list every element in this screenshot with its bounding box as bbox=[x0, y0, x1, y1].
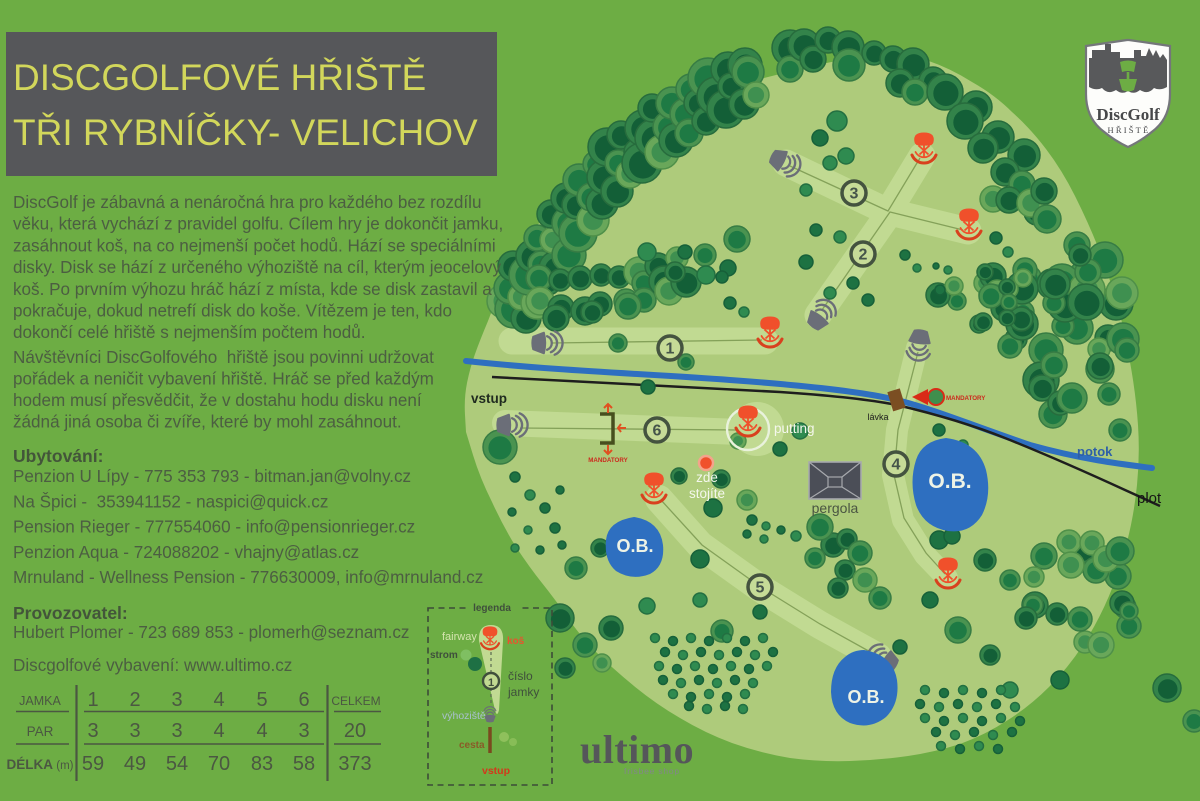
svg-text:3: 3 bbox=[850, 186, 859, 203]
svg-text:Penzion U Lípy - 775 353 793 -: Penzion U Lípy - 775 353 793 - bitman.ja… bbox=[13, 467, 411, 486]
svg-text:plot: plot bbox=[1137, 490, 1162, 507]
svg-text:Ubytování:: Ubytování: bbox=[13, 446, 103, 466]
svg-text:věku, která vychází z pravidel: věku, která vychází z pravidel golfu. Cí… bbox=[13, 215, 503, 234]
svg-text:O.B.: O.B. bbox=[847, 687, 884, 707]
svg-text:1: 1 bbox=[666, 341, 675, 358]
svg-text:disky. Disk se hází z určeného: disky. Disk se hází z určeného výhoziště… bbox=[13, 258, 501, 277]
svg-text:49: 49 bbox=[124, 753, 146, 775]
svg-text:vstup: vstup bbox=[471, 391, 507, 406]
svg-text:5: 5 bbox=[756, 580, 765, 597]
svg-text:3: 3 bbox=[87, 720, 98, 742]
svg-text:koš. Po prvním výhozu hráč ház: koš. Po prvním výhozu hráč hází z místa,… bbox=[13, 280, 492, 299]
svg-text:4: 4 bbox=[213, 689, 224, 711]
svg-text:5: 5 bbox=[256, 689, 267, 711]
svg-text:2: 2 bbox=[129, 689, 140, 711]
svg-text:Penzion Aqua - 724088202 - vha: Penzion Aqua - 724088202 - vhajny@atlas.… bbox=[13, 543, 359, 562]
svg-text:O.B.: O.B. bbox=[616, 536, 653, 556]
svg-text:zasáhnout koš, na co nejmenší: zasáhnout koš, na co nejmenší počet hodů… bbox=[13, 236, 496, 255]
svg-text:stojíte: stojíte bbox=[689, 486, 725, 501]
svg-text:3: 3 bbox=[129, 720, 140, 742]
svg-text:pořádek a neničit vybavení hři: pořádek a neničit vybavení hřiště. Hráč … bbox=[13, 370, 434, 389]
svg-text:hodem musí přesvědčit, že v do: hodem musí přesvědčit, že v dostahu hodu… bbox=[13, 391, 422, 410]
svg-text:4: 4 bbox=[256, 720, 267, 742]
svg-text:54: 54 bbox=[166, 753, 188, 775]
svg-text:CELKEM: CELKEM bbox=[331, 694, 380, 708]
svg-text:DiscGolf: DiscGolf bbox=[1096, 105, 1160, 124]
svg-text:59: 59 bbox=[82, 753, 104, 775]
svg-text:DISCGOLFOVÉ HŘIŠTĚ: DISCGOLFOVÉ HŘIŠTĚ bbox=[13, 57, 426, 98]
svg-text:6: 6 bbox=[298, 689, 309, 711]
svg-text:cesta: cesta bbox=[459, 740, 485, 751]
svg-text:3: 3 bbox=[171, 720, 182, 742]
svg-text:70: 70 bbox=[208, 753, 230, 775]
svg-text:žádná jiná osoba či zvíře, kte: žádná jiná osoba či zvíře, které by mohl… bbox=[13, 413, 402, 432]
svg-text:O.B.: O.B. bbox=[928, 470, 971, 493]
svg-text:jamky: jamky bbox=[507, 685, 539, 699]
svg-text:HŘIŠTĚ: HŘIŠTĚ bbox=[1108, 125, 1151, 135]
svg-text:3: 3 bbox=[298, 720, 309, 742]
svg-text:4: 4 bbox=[892, 457, 901, 474]
svg-text:Discgolfové vybavení: www.ulti: Discgolfové vybavení: www.ultimo.cz bbox=[13, 656, 292, 675]
svg-text:zde: zde bbox=[696, 470, 718, 485]
svg-text:83: 83 bbox=[251, 753, 273, 775]
svg-text:dokončí celé hřiště s nejmenší: dokončí celé hřiště s nejmenším počtem h… bbox=[13, 323, 366, 342]
svg-text:vstup: vstup bbox=[482, 765, 510, 777]
svg-text:Návštěvníci DiscGolfového hři: Návštěvníci DiscGolfového hřiště jsou po… bbox=[13, 348, 434, 367]
svg-text:2: 2 bbox=[859, 247, 868, 264]
svg-text:PAR: PAR bbox=[27, 724, 54, 739]
svg-text:Hubert Plomer - 723 689 853 -: Hubert Plomer - 723 689 853 - plomerh@se… bbox=[13, 623, 409, 642]
svg-text:DÉLKA (m): DÉLKA (m) bbox=[7, 757, 74, 772]
svg-text:legenda: legenda bbox=[473, 603, 511, 614]
svg-text:pergola: pergola bbox=[812, 500, 859, 516]
svg-text:lávka: lávka bbox=[867, 412, 888, 422]
svg-text:MANDATORY: MANDATORY bbox=[946, 395, 986, 402]
svg-text:strom: strom bbox=[430, 650, 458, 661]
svg-text:58: 58 bbox=[293, 753, 315, 775]
svg-text:MANDATORY: MANDATORY bbox=[588, 457, 628, 464]
svg-text:Mrnuland - Wellness Pension -: Mrnuland - Wellness Pension - 776630009,… bbox=[13, 568, 483, 587]
svg-text:fairway: fairway bbox=[442, 631, 477, 643]
svg-text:Na Špici - 353941152 - naspic: Na Špici - 353941152 - naspici@quick.cz bbox=[13, 492, 328, 511]
svg-text:pokračuje, dokud netrefí disk: pokračuje, dokud netrefí disk do koše. V… bbox=[13, 302, 452, 321]
svg-text:20: 20 bbox=[344, 720, 366, 742]
svg-text:Pension Rieger - 777554060 - i: Pension Rieger - 777554060 - info@pensio… bbox=[13, 518, 415, 537]
svg-text:3: 3 bbox=[171, 689, 182, 711]
svg-text:Provozovatel:: Provozovatel: bbox=[13, 603, 128, 623]
svg-text:frisbee shop: frisbee shop bbox=[624, 766, 680, 776]
svg-text:potok: potok bbox=[1077, 444, 1113, 459]
svg-text:koš: koš bbox=[507, 636, 525, 647]
svg-text:4: 4 bbox=[213, 720, 224, 742]
svg-text:6: 6 bbox=[653, 423, 662, 440]
svg-text:JAMKA: JAMKA bbox=[19, 694, 61, 708]
svg-text:1: 1 bbox=[488, 677, 494, 689]
svg-text:DiscGolf je zábavná a nenáročn: DiscGolf je zábavná a nenáročná hra pro … bbox=[13, 193, 481, 212]
svg-text:TŘI RYBNÍČKY- VELICHOV: TŘI RYBNÍČKY- VELICHOV bbox=[13, 112, 478, 153]
svg-text:výhoziště: výhoziště bbox=[442, 710, 486, 722]
svg-text:číslo: číslo bbox=[508, 669, 533, 683]
svg-text:putting: putting bbox=[774, 421, 815, 436]
svg-text:1: 1 bbox=[87, 689, 98, 711]
svg-text:373: 373 bbox=[338, 753, 371, 775]
